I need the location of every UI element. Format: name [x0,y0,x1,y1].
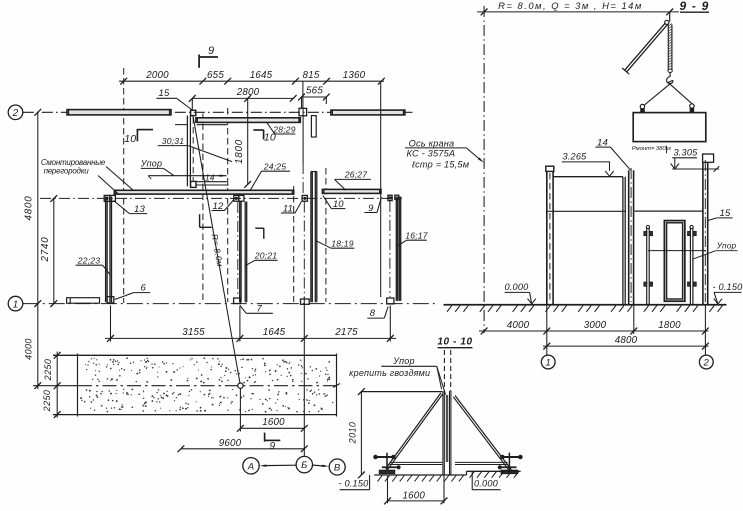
svg-text:Ось крана: Ось крана [409,139,455,149]
svg-text:- 0.150: - 0.150 [712,282,743,292]
svg-text:ℓстр = 15,5м: ℓстр = 15,5м [411,160,470,170]
svg-text:1600: 1600 [262,417,285,428]
svg-text:15: 15 [159,88,170,99]
svg-text:R= 8.0м, Q = 3м , H= 14м: R= 8.0м, Q = 3м , H= 14м [498,0,643,11]
svg-text:1800: 1800 [234,139,245,164]
svg-text:1600: 1600 [402,491,425,502]
svg-text:22;23: 22;23 [77,256,101,266]
svg-text:2000: 2000 [145,70,169,81]
svg-text:9: 9 [208,45,214,57]
svg-text:26;27: 26;27 [344,169,369,179]
svg-text:Рмонт= 380кг: Рмонт= 380кг [632,146,672,152]
svg-text:4000: 4000 [507,320,530,331]
svg-text:9600: 9600 [219,438,242,449]
svg-text:3.265: 3.265 [563,152,588,162]
svg-text:9: 9 [270,441,276,452]
svg-text:2175: 2175 [334,327,358,338]
svg-text:30;31: 30;31 [162,136,185,146]
svg-text:В: В [334,463,341,474]
svg-text:2740: 2740 [40,237,51,263]
svg-text:2010: 2010 [348,422,358,445]
svg-text:28;29: 28;29 [272,125,296,135]
svg-text:2800: 2800 [236,87,260,98]
svg-text:0.000: 0.000 [505,282,530,292]
svg-text:1800: 1800 [658,320,681,331]
svg-text:2250: 2250 [42,390,52,413]
svg-text:16;17: 16;17 [405,231,429,241]
svg-text:3000: 3000 [584,320,607,331]
svg-text:3155: 3155 [182,327,205,338]
svg-text:4800: 4800 [615,335,638,346]
svg-text:1360: 1360 [343,70,366,81]
svg-text:- 0.150: - 0.150 [338,479,369,489]
svg-text:18;19: 18;19 [331,239,354,249]
svg-text:1645: 1645 [250,70,273,81]
svg-text:2: 2 [703,358,710,369]
svg-text:10: 10 [124,133,136,145]
svg-text:1645: 1645 [263,327,286,338]
svg-text:9 - 9: 9 - 9 [679,0,709,13]
svg-text:20;21: 20;21 [254,251,278,261]
svg-text:10 - 10: 10 - 10 [437,337,472,348]
svg-text:6: 6 [141,283,147,294]
svg-text:Упор: Упор [716,242,737,251]
svg-text:8: 8 [370,308,376,319]
svg-text:565: 565 [306,85,323,96]
svg-text:2250: 2250 [43,359,53,382]
svg-text:Упор: Упор [140,158,162,168]
svg-text:крепить гвоздями: крепить гвоздями [349,368,430,378]
svg-text:655: 655 [207,70,224,81]
svg-text:4000: 4000 [24,338,34,360]
svg-text:2: 2 [12,108,19,119]
svg-text:3.305: 3.305 [674,148,699,158]
svg-text:4800: 4800 [24,196,35,221]
svg-text:815: 815 [303,70,320,81]
svg-text:А: А [247,461,255,472]
svg-text:Смонтированные: Смонтированные [41,158,106,167]
svg-text:перегородки: перегородки [44,167,90,176]
svg-text:1: 1 [545,358,550,369]
svg-text:0.000: 0.000 [474,479,499,489]
svg-text:Б: Б [301,460,307,471]
svg-text:КС - 3575А: КС - 3575А [407,149,456,159]
svg-text:Упор: Упор [392,356,414,366]
svg-text:14: 14 [205,173,215,183]
svg-text:1: 1 [13,299,19,310]
svg-text:24;25: 24;25 [263,162,287,172]
